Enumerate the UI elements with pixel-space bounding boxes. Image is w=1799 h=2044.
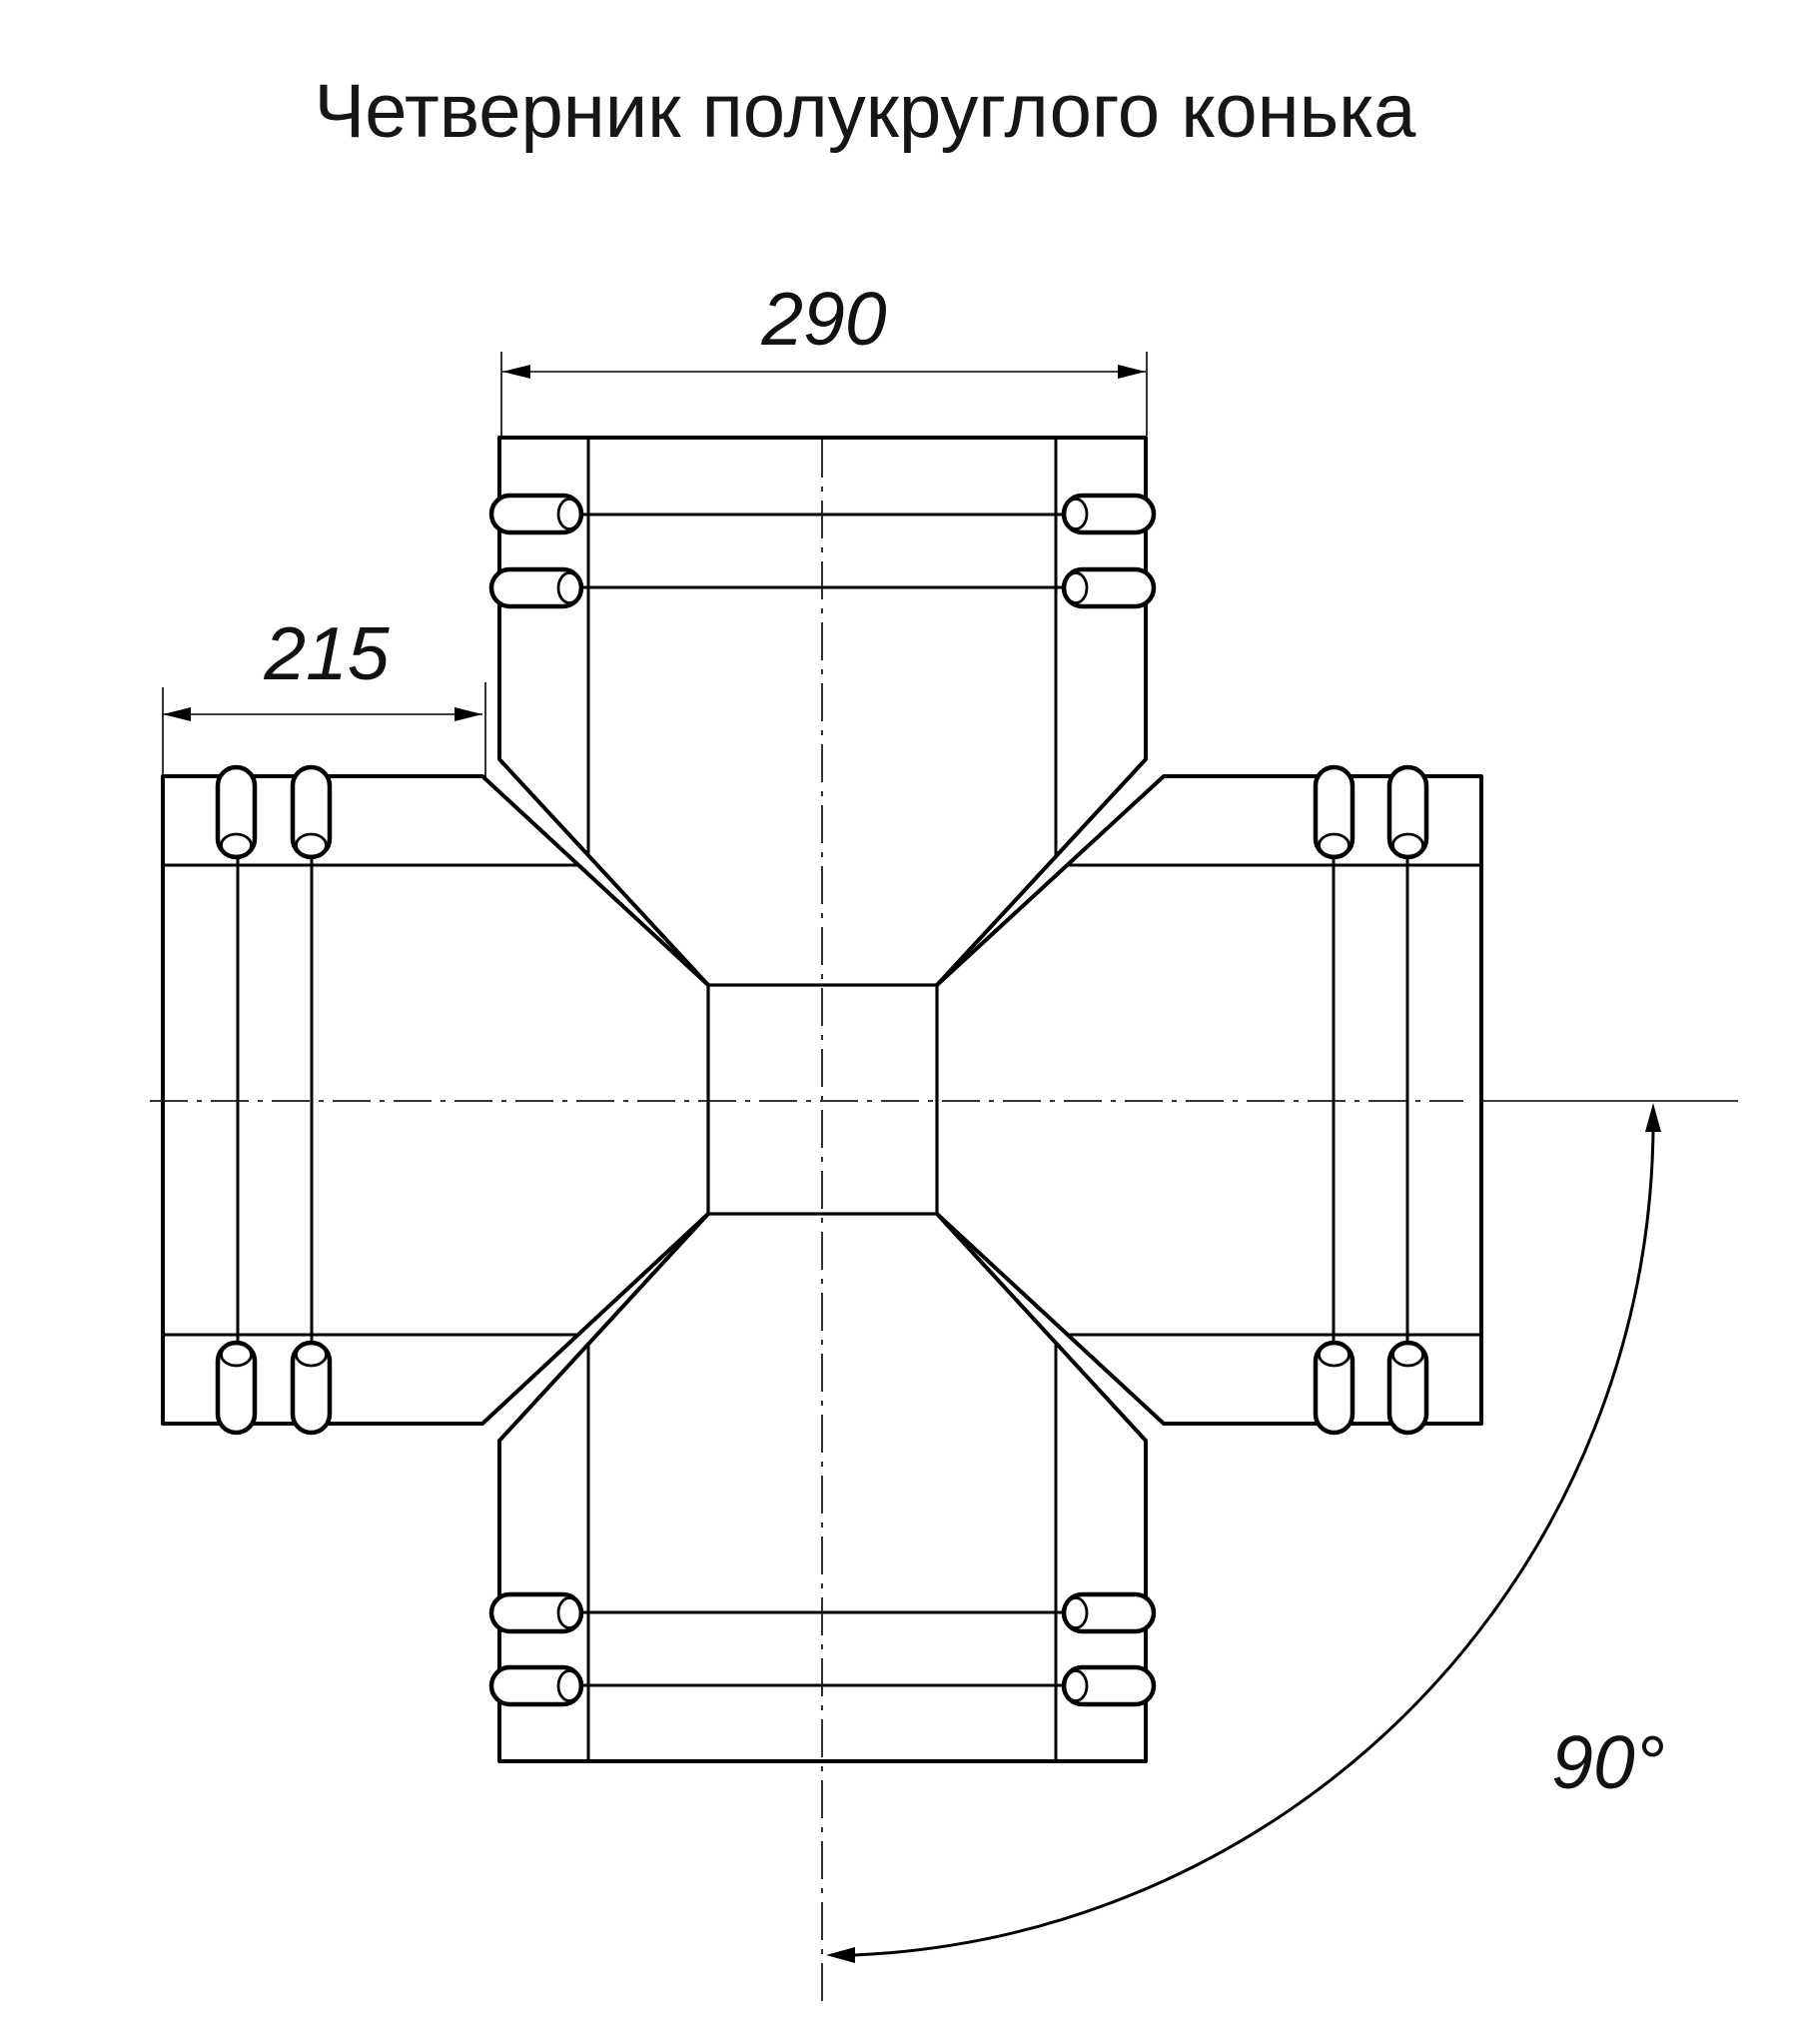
crimp-ring-cap <box>1320 834 1349 856</box>
crimp-ring-cap <box>1065 573 1087 603</box>
dimension-side-length-label: 215 <box>263 611 389 695</box>
crimp-ring-cap <box>222 1344 252 1366</box>
crimp-ring-cap <box>297 1344 327 1366</box>
angle-annotation: 90° <box>826 1101 1738 1963</box>
crimp-ring-cap <box>1393 834 1423 856</box>
ridge-cross-drawing: Четверник полукруглого конька <box>0 0 1799 2044</box>
right-arm <box>937 776 1481 1424</box>
arc-arrow-left <box>826 1947 855 1963</box>
right-arm-contour <box>937 776 1481 1424</box>
crimp-ring-cap <box>558 1598 580 1628</box>
left-arm <box>163 776 708 1424</box>
crimp-ring-cap <box>1065 500 1087 529</box>
technical-drawing-page: Четверник полукруглого конька <box>0 0 1799 2044</box>
crimp-ring-cap <box>222 834 252 856</box>
dimension-arrow <box>163 707 191 721</box>
crimp-ring-cap <box>1320 1344 1349 1366</box>
crimp-ring-cap <box>558 500 580 529</box>
angle-label: 90° <box>1551 1720 1664 1804</box>
left-arm-contour <box>163 776 708 1424</box>
dimension-top-width-label: 290 <box>760 277 886 361</box>
crimp-ring-cap <box>558 1671 580 1701</box>
dimension-side-length: 215 <box>163 611 485 777</box>
crimp-ring-cap <box>297 834 327 856</box>
crimp-ring-cap <box>1393 1344 1423 1366</box>
dimension-arrow <box>454 707 482 721</box>
dimension-arrow <box>1118 365 1146 379</box>
dimension-top-width: 290 <box>501 277 1147 436</box>
arc-arrow-up <box>1645 1103 1661 1132</box>
crimp-ring-cap <box>1065 1671 1087 1701</box>
drawing-title: Четверник полукруглого конька <box>315 69 1417 154</box>
crimp-ring-cap <box>1065 1598 1087 1628</box>
crimp-ring-cap <box>558 573 580 603</box>
dimension-arrow <box>502 365 530 379</box>
